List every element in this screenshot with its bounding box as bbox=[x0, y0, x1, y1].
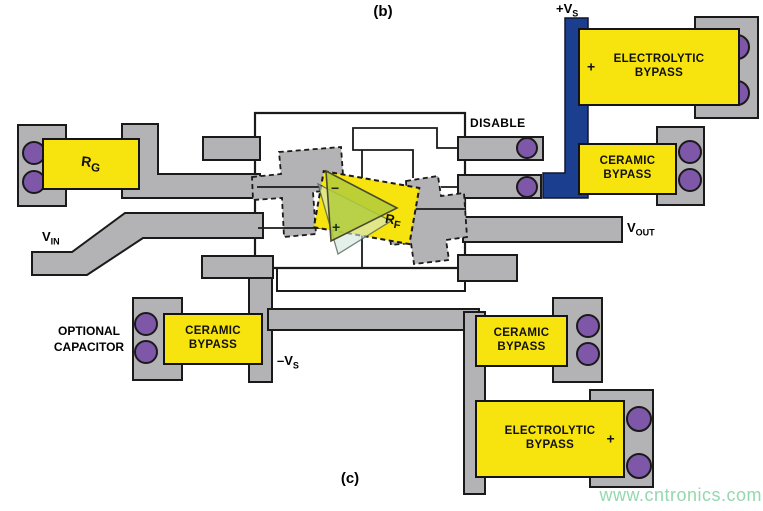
ic-left-pad bbox=[203, 137, 260, 160]
ceramic-bypass-bottom: CERAMIC BYPASS bbox=[475, 315, 568, 367]
via bbox=[679, 169, 701, 191]
polarity-plus: + bbox=[587, 59, 595, 76]
via bbox=[135, 341, 157, 363]
vs-plus-label: +VS bbox=[556, 1, 578, 19]
panel-label-b: (b) bbox=[366, 3, 400, 20]
watermark: www.cntronics.com bbox=[570, 485, 762, 506]
ceramic-bottom-label: CERAMIC BYPASS bbox=[494, 327, 550, 355]
polarity-plus: + bbox=[607, 431, 615, 448]
electrolytic-bypass-bottom: ELECTROLYTIC BYPASS + bbox=[475, 400, 625, 478]
rg-label: RG bbox=[80, 152, 102, 175]
opamp-minus-mark: − bbox=[331, 180, 339, 196]
vs-neg-pin-pad bbox=[202, 256, 273, 278]
via bbox=[517, 138, 537, 158]
vin-label: VIN bbox=[42, 229, 60, 247]
ic-right-lower-pad bbox=[458, 255, 517, 281]
ceramic-left-label: CERAMIC BYPASS bbox=[185, 325, 241, 353]
via bbox=[517, 177, 537, 197]
optional-capacitor-label: OPTIONAL CAPACITOR bbox=[44, 324, 134, 355]
rg-resistor: RG bbox=[42, 138, 140, 190]
ceramic-top-label: CERAMIC BYPASS bbox=[600, 155, 656, 183]
rf-label: RF bbox=[384, 211, 403, 232]
ceramic-bypass-top: CERAMIC BYPASS bbox=[578, 143, 677, 195]
vs-minus-label: –VS bbox=[277, 353, 299, 371]
ic-outline-lower bbox=[277, 268, 465, 291]
disable-label: DISABLE bbox=[470, 116, 525, 130]
electrolytic-bypass-top: + ELECTROLYTIC BYPASS bbox=[578, 28, 740, 106]
vout-trace bbox=[463, 217, 622, 242]
wire-disable-1 bbox=[353, 128, 458, 178]
via bbox=[577, 315, 599, 337]
via bbox=[577, 343, 599, 365]
pcb-layout-figure: RG + ELECTROLYTIC BYPASS CERAMIC BYPASS … bbox=[0, 0, 763, 511]
electrolytic-bottom-label: ELECTROLYTIC BYPASS bbox=[505, 425, 596, 453]
electrolytic-top-label: ELECTROLYTIC BYPASS bbox=[614, 53, 705, 81]
via bbox=[627, 407, 651, 431]
vs-neg-horizontal-trace bbox=[268, 309, 479, 330]
panel-label-c: (c) bbox=[333, 470, 367, 487]
opamp-plus-mark: + bbox=[332, 219, 340, 235]
vout-label: VOUT bbox=[627, 220, 655, 238]
via bbox=[135, 313, 157, 335]
via bbox=[679, 141, 701, 163]
via bbox=[627, 454, 651, 478]
ceramic-bypass-left: CERAMIC BYPASS bbox=[163, 313, 263, 365]
